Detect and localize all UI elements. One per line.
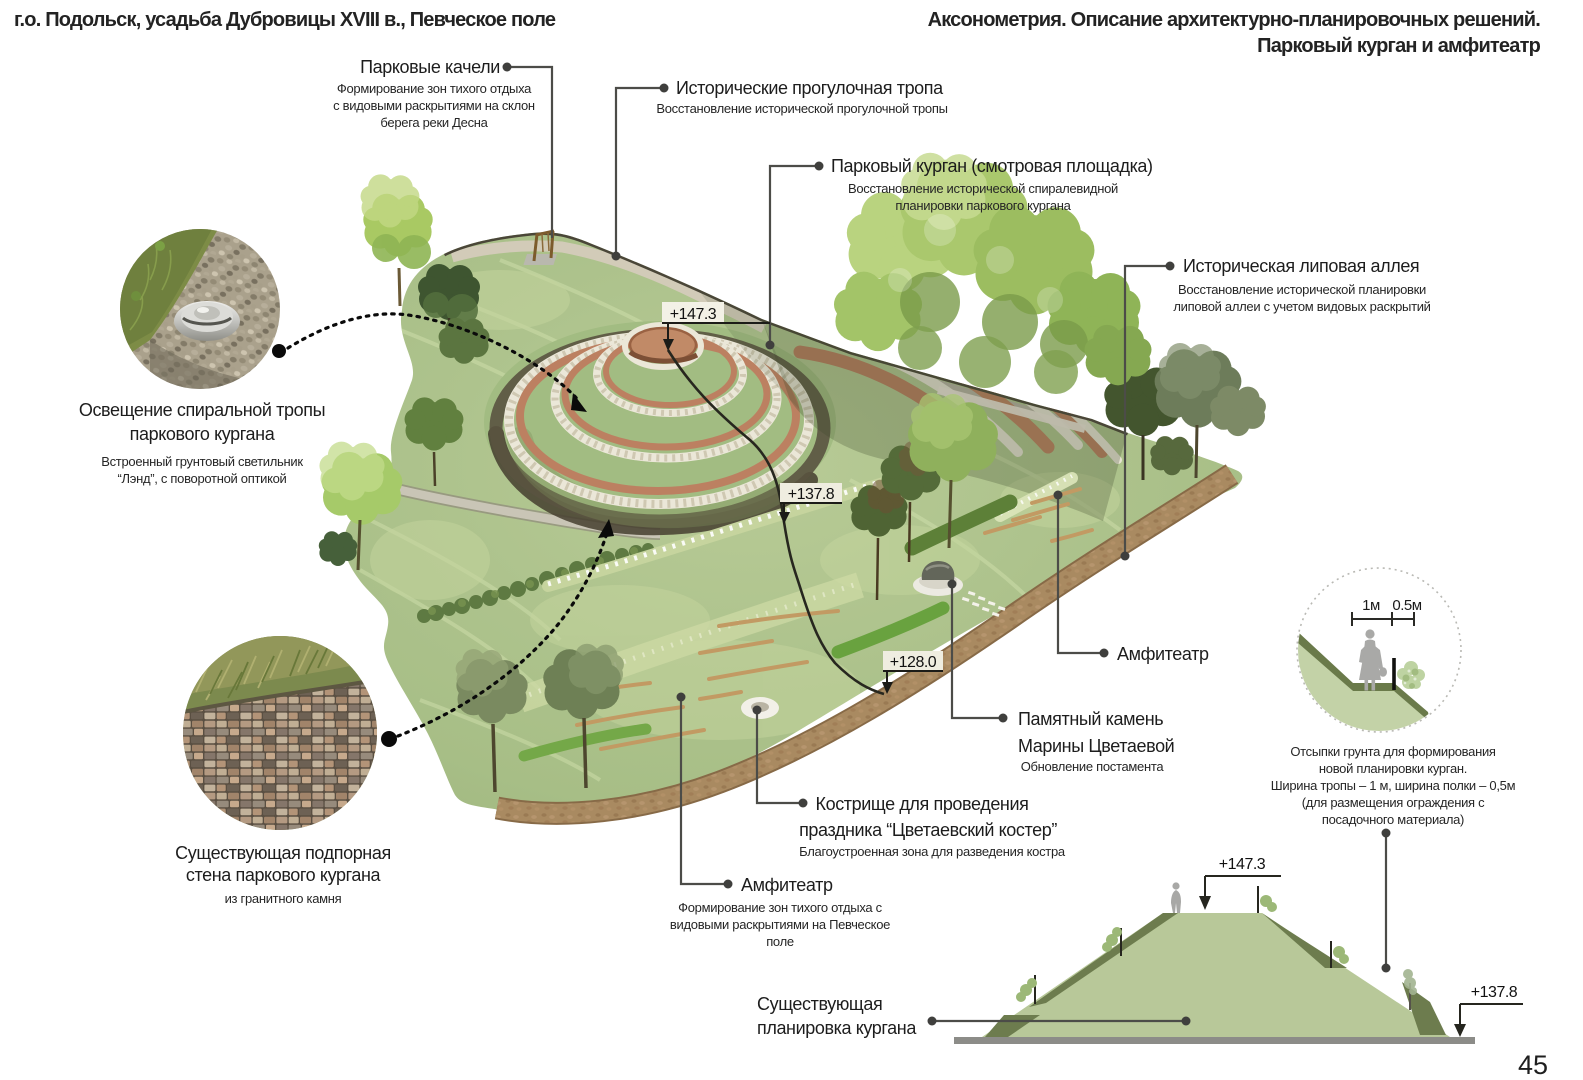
svg-text:Марины Цветаевой: Марины Цветаевой	[1018, 736, 1174, 756]
svg-text:Встроенный грунтовый светильни: Встроенный грунтовый светильник	[101, 454, 303, 469]
svg-text:видовыми раскрытиями на Певче: видовыми раскрытиями на Певческое	[670, 917, 890, 932]
svg-text:+137.8: +137.8	[1471, 984, 1518, 1001]
svg-text:Парковый курган (смотровая пло: Парковый курган (смотровая площадка)	[831, 156, 1153, 176]
svg-text:1м: 1м	[1362, 597, 1380, 614]
svg-text:Восстановление исторической пл: Восстановление исторической планировки	[1178, 282, 1426, 297]
svg-text:Восстановление исторической пр: Восстановление исторической прогулочной …	[656, 101, 947, 116]
svg-text:стена паркового кургана: стена паркового кургана	[186, 865, 382, 885]
svg-text:0.5м: 0.5м	[1392, 597, 1421, 614]
svg-text:Историческая липовая аллея: Историческая липовая аллея	[1183, 256, 1419, 276]
svg-text:планировка кургана: планировка кургана	[757, 1018, 917, 1038]
svg-text:паркового кургана: паркового кургана	[130, 424, 276, 444]
svg-text:“Лэнд”, с поворотной оптикой: “Лэнд”, с поворотной оптикой	[117, 471, 286, 486]
svg-text:+147.3: +147.3	[670, 306, 717, 323]
svg-text:Памятный камень: Памятный камень	[1018, 709, 1163, 729]
svg-text:+147.3: +147.3	[1219, 856, 1266, 873]
svg-text:планировки паркового кургана: планировки паркового кургана	[895, 198, 1071, 213]
svg-text:Парковые качели: Парковые качели	[360, 57, 500, 77]
svg-text:Амфитеатр: Амфитеатр	[741, 875, 833, 895]
svg-text:Обновление постамента: Обновление постамента	[1021, 759, 1165, 774]
svg-text:Существующая подпорная: Существующая подпорная	[175, 843, 391, 863]
svg-text:+128.0: +128.0	[890, 654, 937, 671]
svg-text:Исторические прогулочная тропа: Исторические прогулочная тропа	[676, 78, 944, 98]
svg-text:с видовыми раскрытиями на скло: с видовыми раскрытиями на склон	[333, 98, 535, 113]
svg-text:берега реки Десна: берега реки Десна	[380, 115, 488, 130]
svg-text:+137.8: +137.8	[788, 486, 835, 503]
svg-text:Амфитеатр: Амфитеатр	[1117, 644, 1209, 664]
svg-text:новой планировки курган.: новой планировки курган.	[1319, 761, 1467, 776]
svg-text:Аксонометрия. Описание архитек: Аксонометрия. Описание архитектурно-план…	[928, 9, 1541, 31]
svg-text:45: 45	[1518, 1050, 1548, 1080]
svg-text:Восстановление исторической сп: Восстановление исторической спиралевидно…	[848, 181, 1118, 196]
svg-text:Существующая: Существующая	[757, 994, 882, 1014]
svg-text:из гранитного камня: из гранитного камня	[225, 891, 342, 906]
svg-text:Формирование зон тихого отдыха: Формирование зон тихого отдыха с	[678, 900, 883, 915]
svg-text:Благоустроенная зона для разве: Благоустроенная зона для разведения кост…	[799, 844, 1066, 859]
svg-text:поле: поле	[766, 934, 794, 949]
svg-text:праздника “Цветаевский костер”: праздника “Цветаевский костер”	[799, 820, 1057, 840]
svg-text:Парковый курган и амфитеатр: Парковый курган и амфитеатр	[1257, 35, 1540, 57]
svg-text:Освещение спиральной тропы: Освещение спиральной тропы	[79, 400, 325, 420]
svg-text:Отсыпки грунта для формировани: Отсыпки грунта для формирования	[1290, 744, 1496, 759]
svg-text:Ширина тропы – 1 м, ширина пол: Ширина тропы – 1 м, ширина полки – 0,5м	[1271, 778, 1516, 793]
svg-text:Кострище для проведения: Кострище для проведения	[816, 794, 1029, 814]
svg-text:посадочного материала): посадочного материала)	[1322, 812, 1464, 827]
svg-text:г.о. Подольск, усадьба Дуброви: г.о. Подольск, усадьба Дубровицы XVIII в…	[14, 9, 556, 31]
svg-text:(для размещения ограждения с: (для размещения ограждения с	[1302, 795, 1485, 810]
svg-text:липовой аллеи с учетом видовых: липовой аллеи с учетом видовых раскрытий	[1173, 299, 1430, 314]
svg-text:Формирование зон тихого отдыха: Формирование зон тихого отдыха	[337, 81, 532, 96]
